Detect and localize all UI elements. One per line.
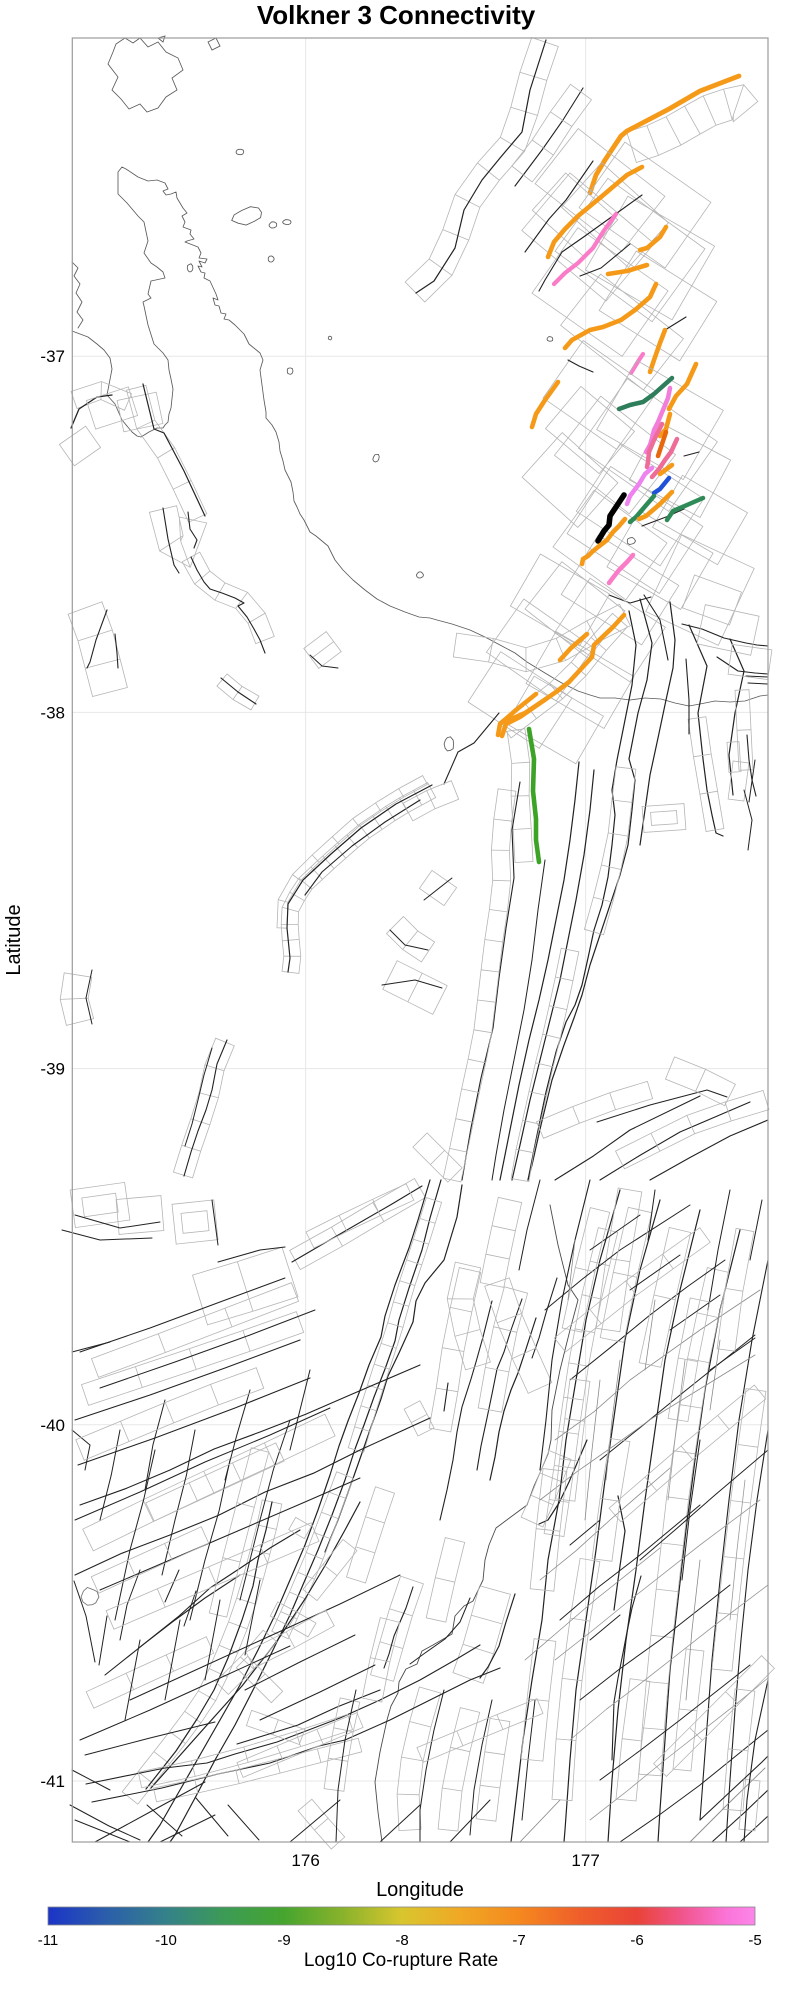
svg-text:-39: -39: [40, 1060, 65, 1079]
svg-text:-37: -37: [40, 347, 65, 366]
svg-text:Volkner 3 Connectivity: Volkner 3 Connectivity: [257, 0, 536, 30]
svg-text:Latitude: Latitude: [3, 904, 25, 975]
svg-text:177: 177: [571, 1851, 599, 1870]
svg-text:-10: -10: [155, 1932, 177, 1949]
svg-text:-9: -9: [277, 1932, 290, 1949]
svg-text:-41: -41: [40, 1772, 65, 1791]
svg-text:Longitude: Longitude: [376, 1879, 464, 1901]
svg-text:-6: -6: [630, 1932, 643, 1949]
svg-text:-38: -38: [40, 703, 65, 722]
svg-text:-40: -40: [40, 1416, 65, 1435]
svg-text:-5: -5: [748, 1932, 761, 1949]
svg-text:-7: -7: [512, 1932, 525, 1949]
svg-text:-8: -8: [395, 1932, 408, 1949]
svg-text:176: 176: [291, 1851, 319, 1870]
svg-text:Log10 Co-rupture Rate: Log10 Co-rupture Rate: [304, 1950, 498, 1971]
svg-text:-11: -11: [38, 1932, 59, 1949]
